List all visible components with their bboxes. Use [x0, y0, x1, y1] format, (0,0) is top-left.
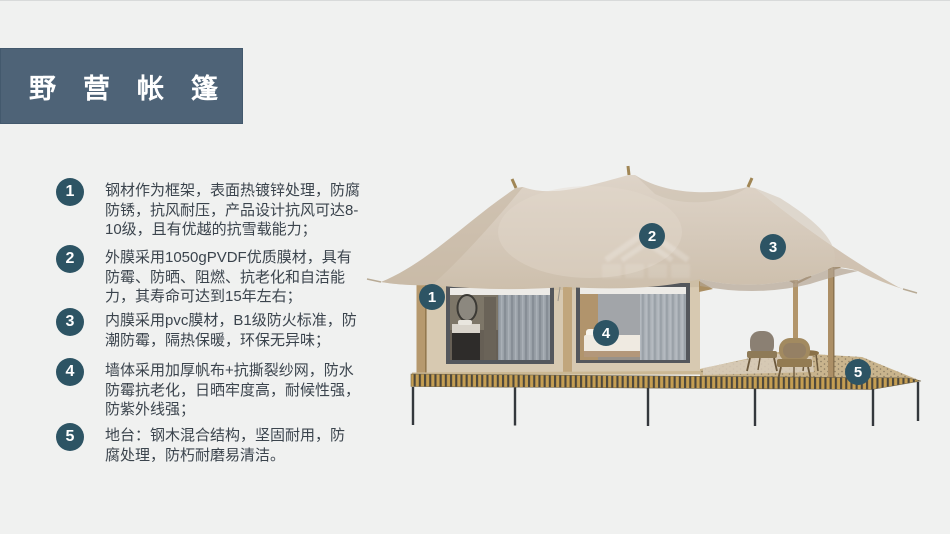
window-bathroom [446, 284, 554, 364]
window-valance [450, 288, 550, 295]
cabin [417, 279, 714, 375]
callout-badge-3: 3 [760, 234, 786, 260]
tent-render [0, 0, 950, 534]
sheer-curtain [640, 294, 686, 360]
callout-badge-2: 2 [639, 223, 665, 249]
callout-badge-4: 4 [593, 320, 619, 346]
callout-badge-1: 1 [419, 284, 445, 310]
mirror [458, 295, 477, 321]
deck-platform [411, 371, 921, 426]
vanity [452, 324, 480, 333]
tent-illustration: 1 2 3 4 5 [0, 0, 950, 534]
cabinet [452, 333, 480, 360]
guy-rope-left [367, 279, 381, 282]
cabin-post-mid [563, 283, 572, 374]
guy-rope-right [903, 289, 917, 293]
curtain [498, 295, 550, 360]
window-bedroom [576, 283, 690, 363]
callout-badge-5: 5 [845, 359, 871, 385]
